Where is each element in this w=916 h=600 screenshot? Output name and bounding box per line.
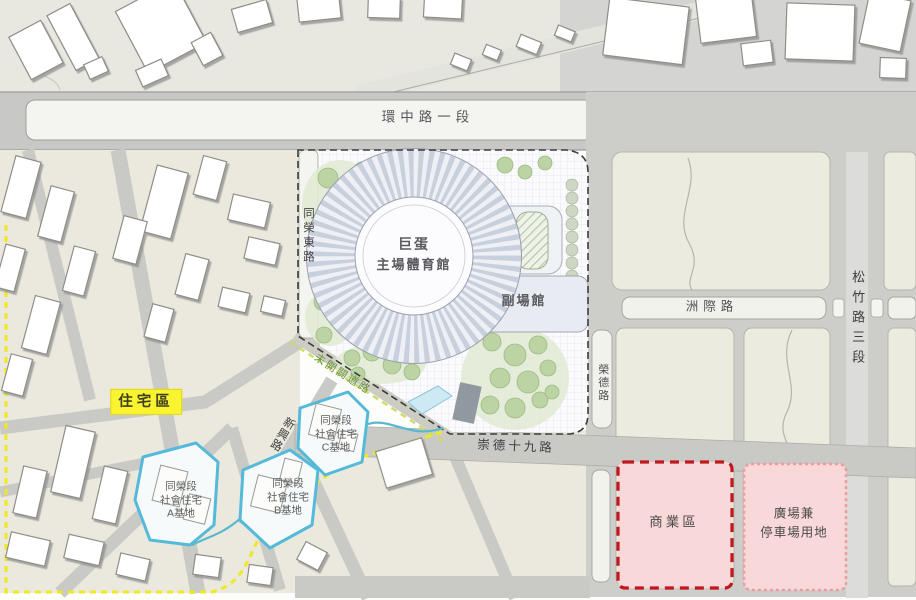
- housing-a-line2: 社會住宅: [160, 494, 202, 506]
- road-label-songzhu-sec3: 松竹路三段: [848, 270, 866, 370]
- sub-venue-label: 副場館: [501, 292, 546, 310]
- housing-b-label: 同榮段 社會住宅 B基地: [267, 478, 309, 519]
- road-label-tongrong-east: 同榮東路: [300, 207, 316, 265]
- plaza-parking-line1: 廣場兼: [774, 506, 815, 520]
- stadium-label: 巨蛋 主場體育館: [376, 234, 451, 275]
- housing-b-line2: 社會住宅: [267, 491, 309, 503]
- housing-c-label: 同榮段 社會住宅 C基地: [315, 415, 357, 456]
- housing-a-line1: 同榮段: [165, 481, 197, 493]
- housing-b-line1: 同榮段: [272, 478, 304, 490]
- commercial-zone-label: 商業區: [649, 514, 699, 533]
- housing-c-line3: C基地: [322, 442, 351, 454]
- housing-b-line3: B基地: [274, 505, 302, 517]
- housing-a-label: 同榮段 社會住宅 A基地: [160, 481, 202, 522]
- site-plan-map: 環中路一段 同榮東路 松竹路三段 洲際路 榮德路 崇德十九路 未開闢道路 新興路…: [0, 0, 916, 600]
- plaza-parking-label: 廣場兼 停車場用地: [760, 504, 828, 542]
- road-label-zhouji: 洲際路: [686, 298, 739, 316]
- road-label-rongde: 榮德路: [594, 364, 609, 403]
- stadium-label-line2: 主場體育館: [376, 257, 451, 272]
- housing-c-line2: 社會住宅: [315, 428, 357, 440]
- residential-zone-label: 住宅區: [110, 389, 182, 415]
- plaza-parking-line2: 停車場用地: [760, 525, 828, 539]
- road-label-chongde-19: 崇德十九路: [477, 437, 555, 458]
- stadium-label-line1: 巨蛋: [398, 236, 430, 252]
- housing-a-line3: A基地: [167, 508, 195, 520]
- housing-c-line1: 同榮段: [320, 415, 352, 427]
- road-label-huanzhong: 環中路一段: [382, 109, 475, 128]
